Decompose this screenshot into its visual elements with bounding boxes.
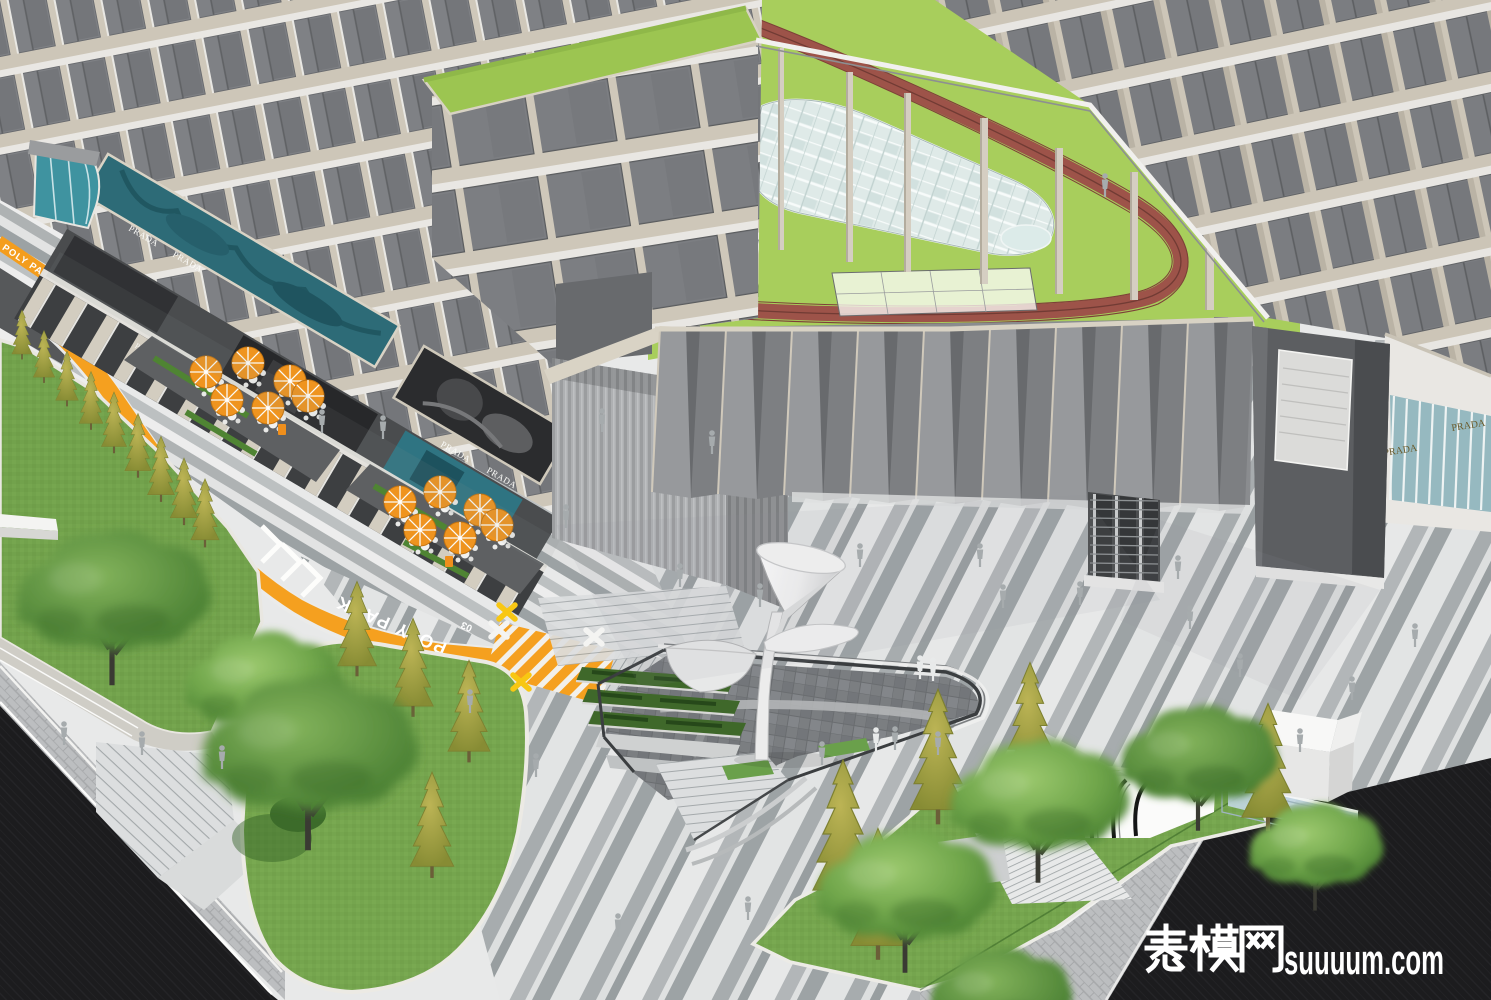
svg-text:suuuum.com: suuuum.com	[1284, 936, 1444, 983]
